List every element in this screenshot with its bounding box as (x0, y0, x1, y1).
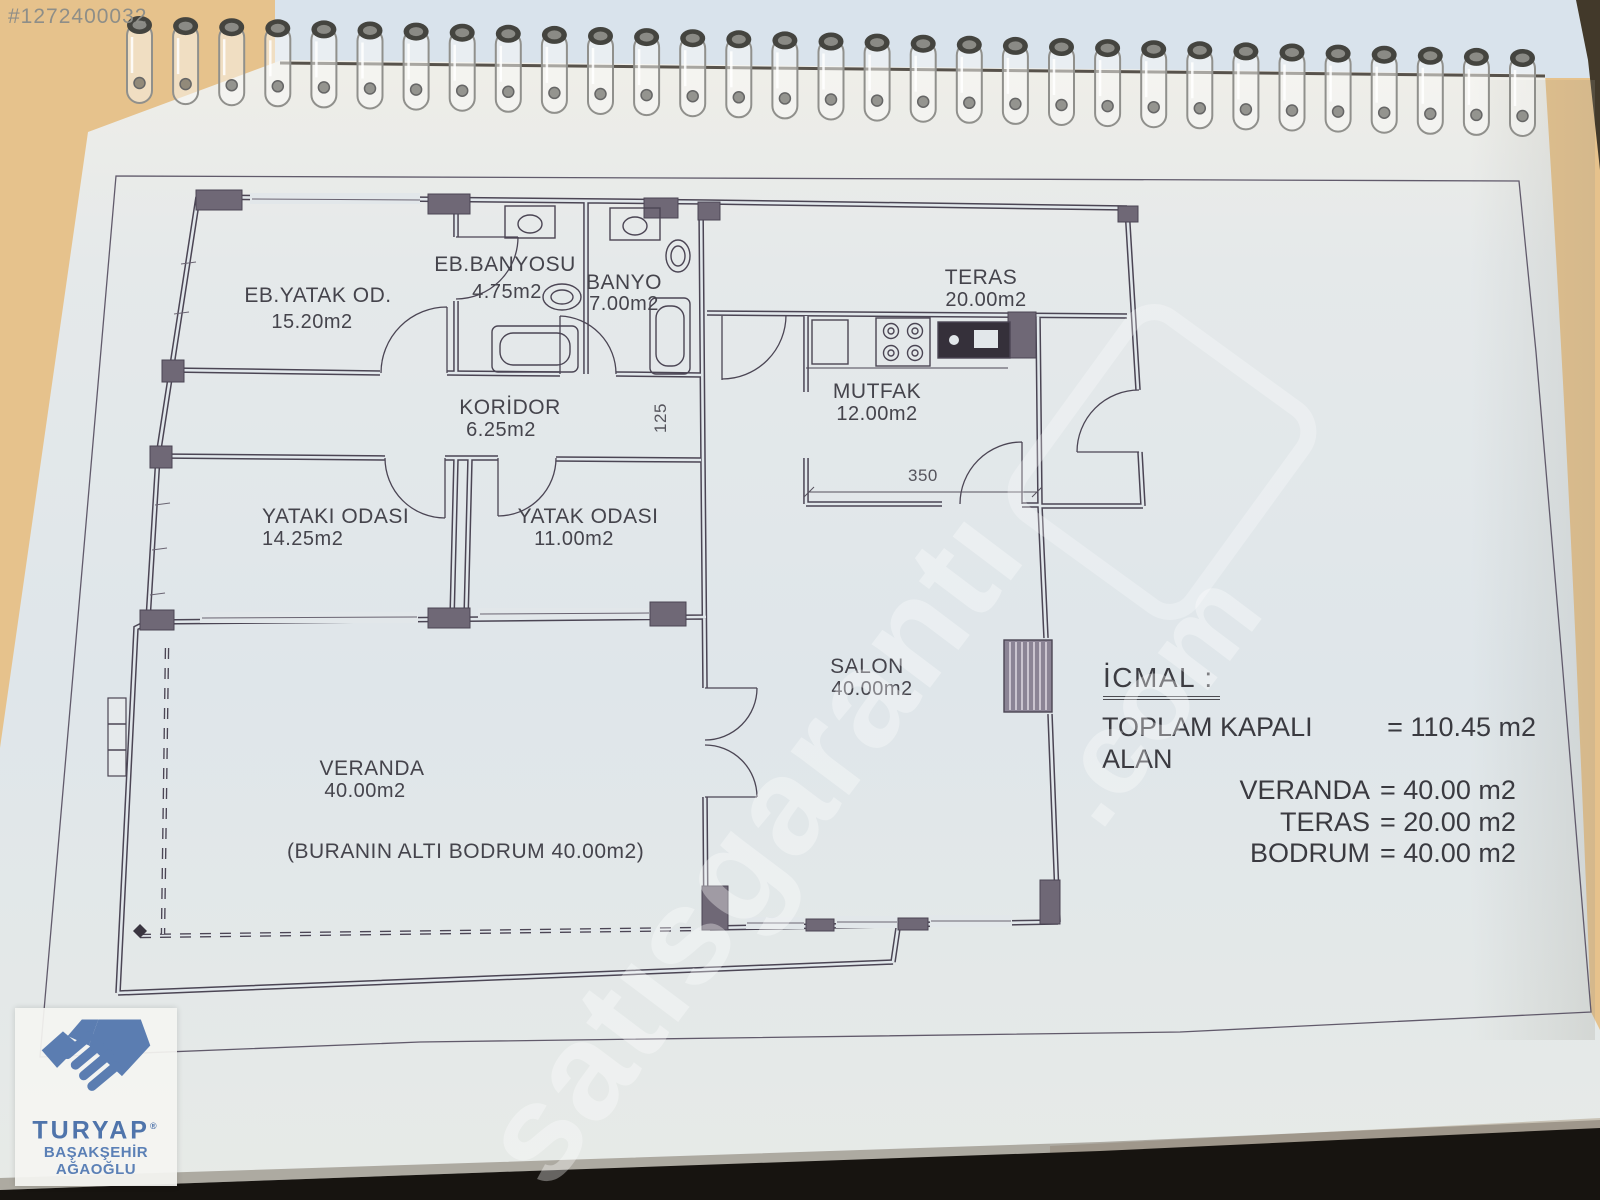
summary-title: İCMAL : (1103, 662, 1220, 700)
spiral-notebook-photo: #1272400032 EB.YATAK OD. 15.20m2 EB.BANY… (0, 0, 1600, 1200)
photo-id: #1272400032 (8, 5, 147, 29)
summary-value: = 110.45 m2 (1387, 712, 1552, 775)
room-name-mutfak: MUTFAK (833, 380, 921, 404)
turyap-handshake-icon (15, 1014, 177, 1115)
summary-block: TOPLAM KAPALI ALAN = 110.45 m2 VERANDA =… (1102, 712, 1552, 870)
turyap-logo: TURYAP® BAŞAKŞEHİR AĞAOĞLU (15, 1008, 177, 1186)
room-name-banyo: BANYO (586, 271, 662, 295)
summary-line-total: TOPLAM KAPALI ALAN = 110.45 m2 (1102, 712, 1552, 775)
summary-label: VERANDA (1239, 775, 1370, 807)
turyap-name: TURYAP (32, 1116, 150, 1144)
room-name-koridor: KORİDOR (459, 396, 561, 420)
room-area-mutfak: 12.00m2 (836, 403, 917, 426)
room-name-eb-yatak: EB.YATAK OD. (244, 284, 391, 308)
gate-symbol (108, 698, 126, 776)
room-area-salon: 40.00m2 (831, 678, 912, 701)
summary-label: TOPLAM KAPALI ALAN (1102, 712, 1377, 775)
notebook-page (0, 60, 1600, 1192)
floorplan-photo-svg (0, 0, 1600, 1200)
summary-line-bodrum: BODRUM = 40.00 m2 (1102, 838, 1552, 870)
room-name-eb-banyosu: EB.BANYOSU (434, 253, 576, 277)
room-area-veranda: 40.00m2 (324, 780, 405, 803)
dim-350: 350 (908, 466, 938, 486)
room-name-yatak: YATAK ODASI (518, 505, 659, 529)
registered-mark: ® (150, 1121, 160, 1131)
stairs (1004, 640, 1052, 712)
summary-value: = 40.00 m2 (1380, 838, 1552, 870)
room-area-eb-yatak: 15.20m2 (271, 311, 352, 334)
summary-line-teras: TERAS = 20.00 m2 (1102, 807, 1552, 839)
basement-note: (BURANIN ALTI BODRUM 40.00m2) (287, 840, 644, 864)
summary-label: TERAS (1280, 807, 1370, 839)
turyap-branch: BAŞAKŞEHİR AĞAOĞLU (15, 1144, 177, 1178)
room-area-banyo: 7.00m2 (589, 293, 659, 316)
room-name-veranda: VERANDA (319, 757, 424, 781)
room-area-koridor: 6.25m2 (466, 419, 536, 442)
room-name-yataki: YATAKI ODASI (262, 505, 409, 529)
room-area-teras: 20.00m2 (945, 289, 1026, 312)
room-name-teras: TERAS (945, 266, 1018, 290)
room-area-yataki: 14.25m2 (262, 528, 343, 551)
room-area-yatak: 11.00m2 (534, 528, 614, 551)
turyap-wordmark: TURYAP® (15, 1115, 177, 1141)
summary-value: = 20.00 m2 (1380, 807, 1552, 839)
dim-125: 125 (651, 403, 671, 433)
summary-label: BODRUM (1250, 838, 1370, 870)
room-area-eb-banyosu: 4.75m2 (472, 281, 542, 304)
summary-line-veranda: VERANDA = 40.00 m2 (1102, 775, 1552, 807)
summary-value: = 40.00 m2 (1380, 775, 1552, 807)
room-name-salon: SALON (830, 655, 904, 679)
